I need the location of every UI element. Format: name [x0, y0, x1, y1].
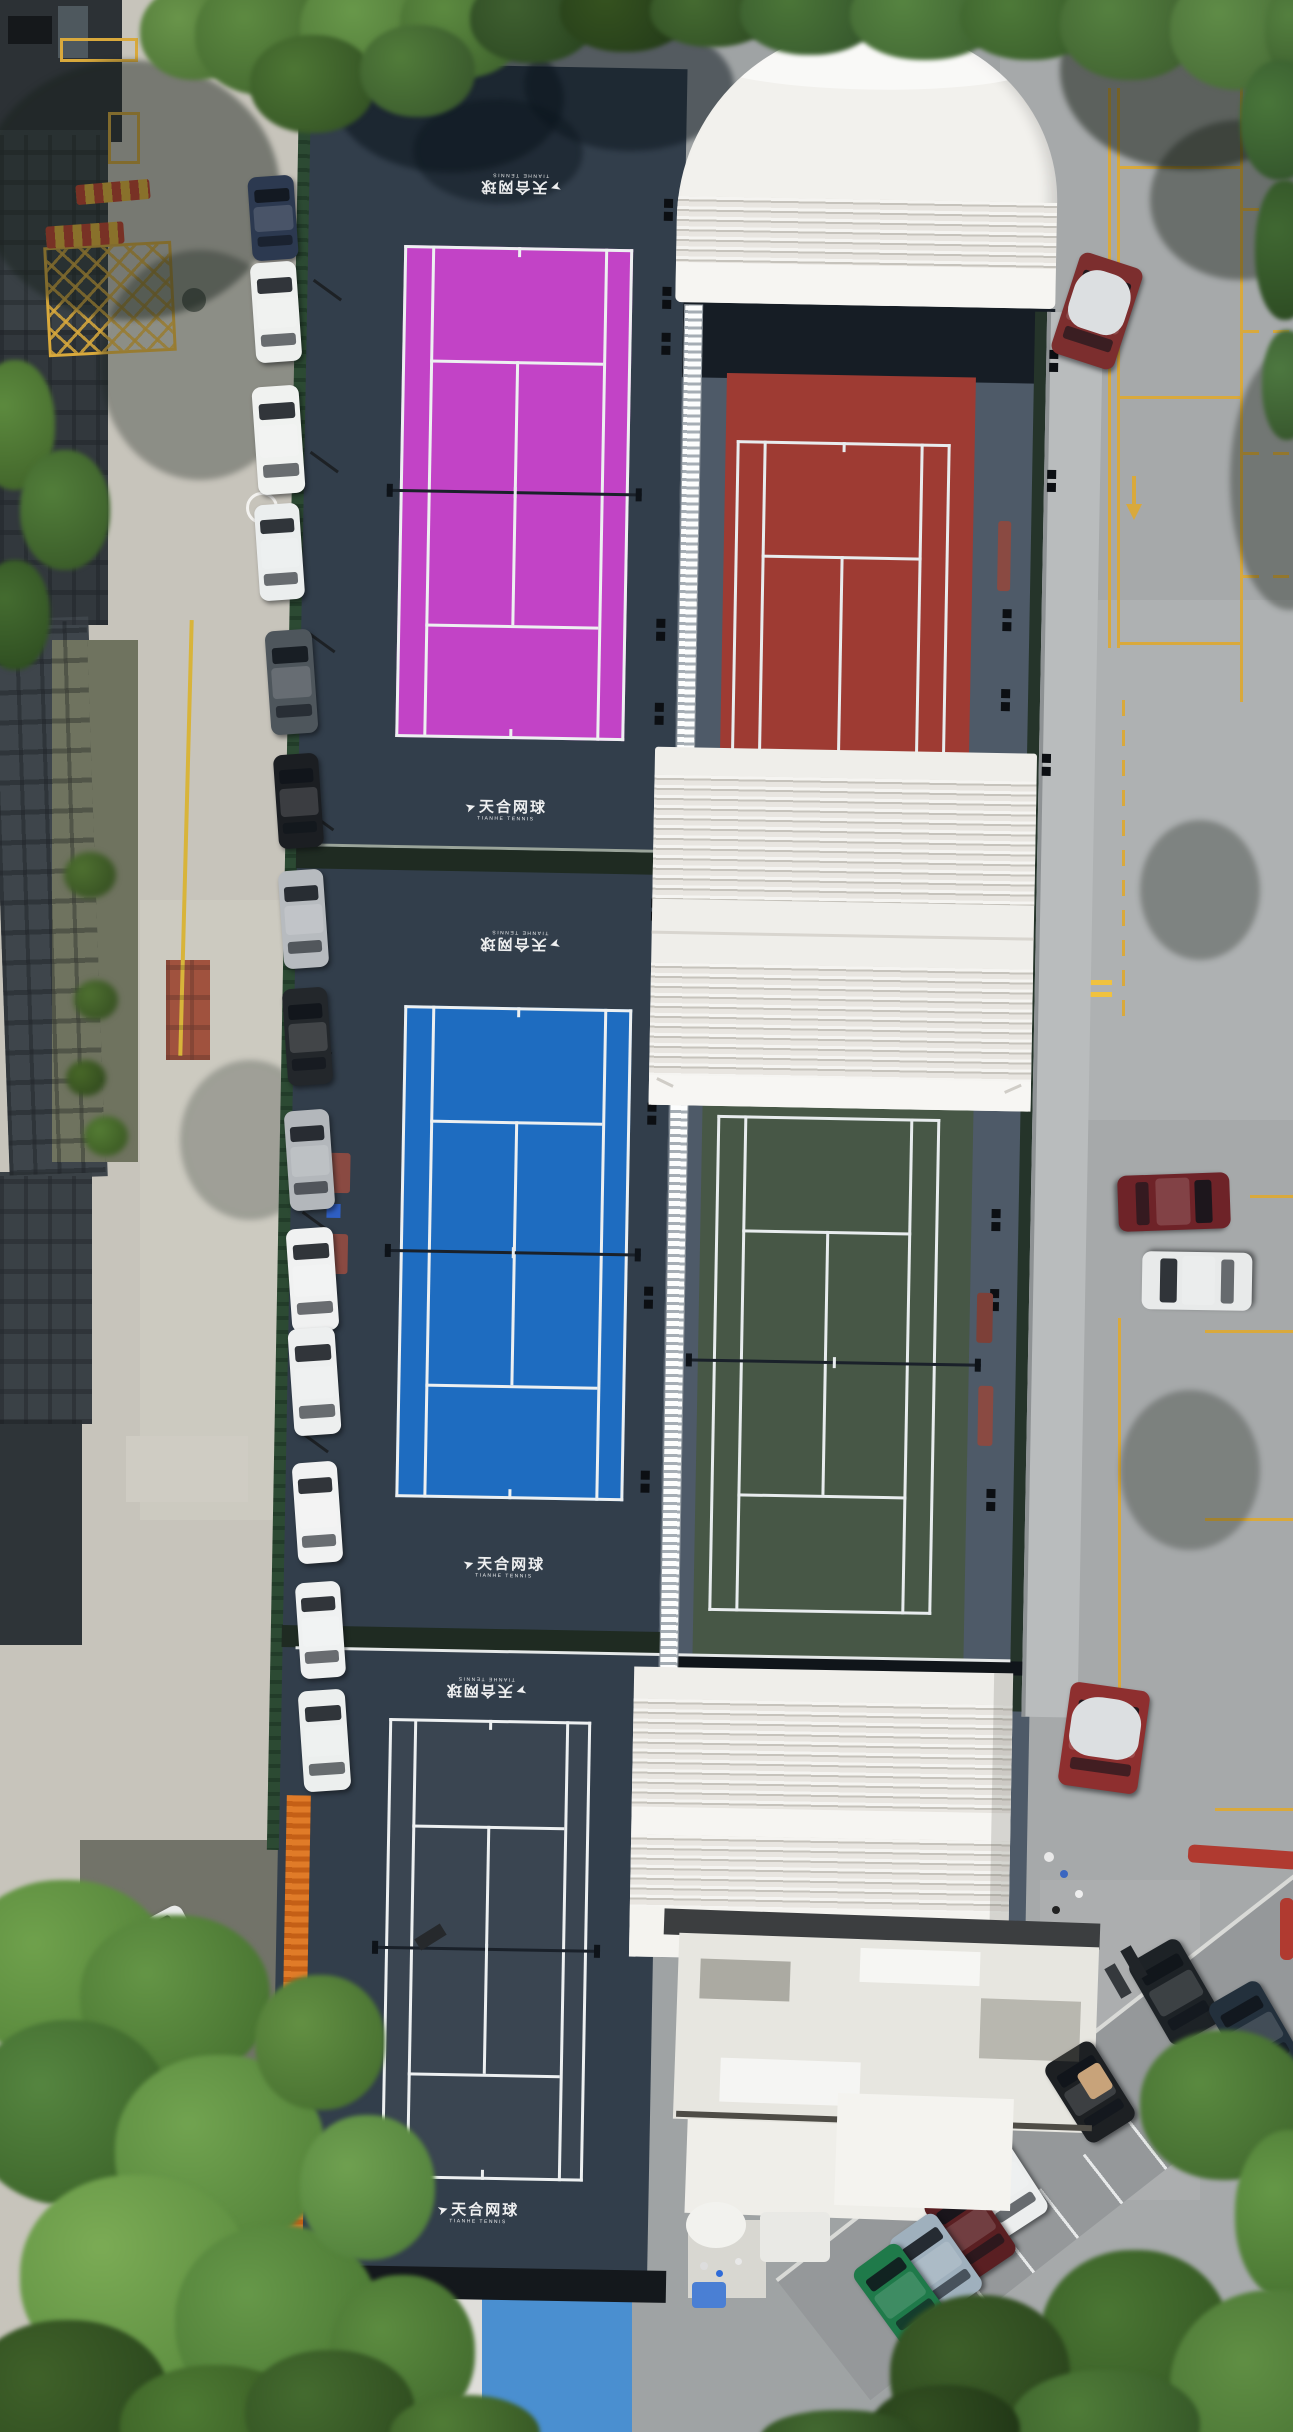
- logo-text-cn: 天合网球: [451, 2202, 519, 2218]
- part: [263, 463, 300, 478]
- ymark-line: [1117, 88, 1120, 648]
- part: [489, 1720, 492, 1730]
- part: [264, 572, 299, 586]
- part: [260, 518, 295, 534]
- part: [640, 1484, 649, 1493]
- logo-text-cn: 天合网球: [477, 1557, 545, 1573]
- person: [716, 2270, 723, 2277]
- bench: [997, 521, 1011, 591]
- part: [992, 1209, 1001, 1218]
- parked-car: [251, 384, 305, 495]
- part: [279, 768, 314, 784]
- bench: [977, 1386, 993, 1446]
- part: [517, 1007, 520, 1017]
- part: [305, 1650, 340, 1664]
- part: [635, 1248, 641, 1261]
- part: [1003, 609, 1012, 618]
- part: [309, 1762, 346, 1776]
- tree-shadow-e: [1140, 820, 1260, 960]
- bush: [66, 1060, 106, 1096]
- part: [1002, 622, 1011, 631]
- building-w5: [0, 1420, 82, 1645]
- part: [254, 188, 290, 203]
- part: [1126, 504, 1142, 520]
- canopy-north: [675, 22, 1060, 309]
- bush: [74, 980, 118, 1020]
- parked-car: [273, 753, 324, 850]
- aerial-photo-tennis-complex: ➤天合网球TIANHE TENNIS➤天合网球TIANHE TENNIS➤天合网…: [0, 0, 1293, 2432]
- part: [655, 703, 664, 712]
- logo-tianhe: ➤天合网球TIANHE TENNIS: [430, 2202, 527, 2234]
- person: [1075, 1890, 1083, 1898]
- person: [735, 2258, 742, 2265]
- parked-car: [295, 1581, 347, 1680]
- part: [294, 1181, 329, 1195]
- barrier-red: [1280, 1898, 1293, 1960]
- part: [257, 277, 293, 294]
- court-red-tick: [843, 442, 846, 452]
- logo-tianhe: ➤天合网球TIANHE TENNIS: [456, 1556, 553, 1588]
- parked-car: [298, 1688, 352, 1792]
- part: [1001, 702, 1010, 711]
- part: [481, 2170, 484, 2180]
- logo-text-en: TIANHE TENNIS: [449, 2219, 507, 2225]
- part: [664, 199, 673, 208]
- tarp-blue: [692, 2282, 726, 2308]
- part: [656, 632, 665, 641]
- part: [290, 1145, 330, 1178]
- brick-walk-joints: [166, 960, 210, 1060]
- roof-ribbed: [834, 2093, 1014, 2211]
- part: [1067, 1694, 1145, 1763]
- part: [662, 287, 671, 296]
- part: [271, 666, 312, 700]
- tree: [250, 35, 375, 133]
- person: [1044, 1852, 1054, 1862]
- part: [644, 1287, 653, 1296]
- part: [1047, 483, 1056, 492]
- person: [1060, 1870, 1068, 1878]
- part: [288, 940, 323, 954]
- part: [636, 488, 642, 501]
- part: [258, 424, 299, 459]
- part: [372, 1941, 378, 1954]
- part: [385, 1244, 391, 1257]
- logo-text-en: TIANHE TENNIS: [491, 929, 549, 935]
- part: [297, 1301, 334, 1315]
- part: [508, 1489, 511, 1499]
- parked-car: [254, 503, 306, 602]
- part: [676, 196, 1057, 269]
- part: [986, 1489, 995, 1498]
- part: [305, 1705, 342, 1722]
- swoosh-bird-icon: ➤: [461, 1556, 475, 1572]
- part: [1132, 476, 1136, 506]
- logo-text-cn: 天合网球: [445, 1682, 513, 1698]
- part: [991, 1222, 1000, 1231]
- bench: [976, 1293, 993, 1343]
- parked-car: [282, 987, 334, 1087]
- part: [1221, 1259, 1235, 1303]
- part: [288, 1022, 328, 1054]
- parked-car: [247, 174, 299, 261]
- parked-car: [250, 261, 303, 364]
- part: [294, 1366, 335, 1401]
- part: [288, 1003, 323, 1020]
- tree-shadow-e: [1120, 1390, 1260, 1550]
- part: [298, 1477, 333, 1494]
- part: [294, 1344, 331, 1362]
- parked-car: [292, 1461, 344, 1565]
- person: [700, 2262, 708, 2270]
- part: [284, 904, 324, 936]
- part: [1042, 754, 1051, 763]
- part: [655, 716, 664, 725]
- roof-stain: [699, 1958, 790, 2001]
- logo-text-en: TIANHE TENNIS: [457, 1675, 515, 1681]
- part: [1047, 470, 1056, 479]
- part: [594, 1945, 600, 1958]
- ymark-line: [1118, 1318, 1121, 1698]
- part: [675, 262, 1056, 309]
- logo-tianhe: ➤天合网球TIANHE TENNIS: [472, 163, 569, 195]
- ymark-line: [1117, 396, 1242, 399]
- swoosh-bird-icon: ➤: [436, 2202, 450, 2218]
- part: [986, 1502, 995, 1511]
- logo-text-en: TIANHE TENNIS: [492, 172, 550, 178]
- part: [1042, 767, 1051, 776]
- parked-car: [264, 628, 318, 735]
- logo-text-cn: 天合网球: [478, 936, 546, 952]
- swoosh-bird-icon: ➤: [463, 799, 477, 815]
- part: [975, 1359, 981, 1372]
- logo-text-cn: 天合网球: [479, 178, 547, 194]
- tree: [360, 25, 475, 117]
- part: [284, 885, 319, 902]
- tree: [20, 450, 110, 570]
- ymark-line: [1250, 1195, 1293, 1198]
- canopy-south-pleats: [632, 1698, 1013, 1813]
- roof-bright: [859, 1948, 980, 1986]
- part: [662, 300, 671, 309]
- part: [1069, 1757, 1131, 1777]
- logo-text-en: TIANHE TENNIS: [475, 1574, 533, 1580]
- ymark-line: [1205, 1330, 1293, 1333]
- part: [512, 1247, 515, 1258]
- part: [258, 402, 295, 420]
- part: [485, 1944, 488, 1955]
- part: [387, 484, 393, 497]
- part: [292, 1057, 327, 1071]
- utility-slab: [126, 1436, 248, 1502]
- building-w4-windows: [0, 1176, 92, 1424]
- bush: [64, 852, 116, 898]
- part: [1155, 1177, 1191, 1225]
- part: [276, 704, 313, 718]
- part: [664, 212, 673, 221]
- part: [661, 346, 670, 355]
- canopy-mid-pleats: [652, 775, 1036, 906]
- part: [257, 235, 293, 247]
- part: [304, 1725, 345, 1758]
- logo-tianhe: ➤天合网球TIANHE TENNIS: [471, 920, 568, 952]
- tree: [255, 1975, 385, 2110]
- part: [301, 1616, 341, 1648]
- part: [662, 333, 671, 342]
- part: [293, 1243, 330, 1260]
- swoosh-bird-icon: ➤: [514, 1683, 528, 1699]
- bush: [84, 1116, 128, 1156]
- car-white-mid: [1142, 1251, 1253, 1311]
- canopy-south-pleats: [630, 1834, 1010, 1913]
- ymark-arrow: [1126, 476, 1142, 520]
- umbrella-white: [686, 2202, 746, 2248]
- ymark-line: [1117, 642, 1242, 645]
- part: [260, 538, 300, 570]
- parked-car: [284, 1109, 336, 1212]
- person: [1052, 1906, 1060, 1914]
- car-covered-red: [1057, 1681, 1151, 1795]
- parked-car: [287, 1326, 341, 1436]
- part: [641, 1471, 650, 1480]
- ymark-line: [1215, 1808, 1293, 1811]
- part: [1001, 689, 1010, 698]
- rooftop-unit: [8, 16, 52, 44]
- part: [518, 247, 521, 257]
- roof-stain: [979, 1998, 1081, 2061]
- part: [647, 1116, 656, 1125]
- part: [686, 1353, 692, 1366]
- car-red-mid: [1117, 1172, 1231, 1232]
- part: [514, 487, 517, 498]
- ymark-dash: [1122, 700, 1125, 1020]
- part: [833, 1357, 836, 1368]
- logo-text-cn: 天合网球: [479, 800, 547, 816]
- part: [1182, 1256, 1216, 1306]
- logo-tianhe: ➤天合网球TIANHE TENNIS: [458, 799, 555, 831]
- part: [279, 787, 319, 818]
- part: [1135, 1182, 1149, 1225]
- part: [1194, 1180, 1212, 1224]
- part: [1160, 1258, 1178, 1302]
- part: [302, 1534, 337, 1548]
- yellow-stop-bar: [60, 38, 138, 62]
- canopy-mid-pleats: [649, 963, 1033, 1082]
- swoosh-bird-icon: ➤: [548, 937, 562, 953]
- part: [1049, 363, 1058, 372]
- part: [656, 619, 665, 628]
- logo-tianhe: ➤天合网球TIANHE TENNIS: [438, 1667, 535, 1699]
- swoosh-bird-icon: ➤: [549, 179, 563, 195]
- part: [292, 1264, 333, 1298]
- parked-car: [278, 869, 330, 970]
- part: [301, 1596, 336, 1612]
- tree: [300, 2115, 435, 2260]
- tent-white: [760, 2212, 830, 2262]
- part: [644, 1300, 653, 1309]
- part: [290, 1125, 325, 1142]
- part: [253, 205, 294, 233]
- part: [261, 333, 297, 347]
- part: [256, 297, 297, 330]
- part: [298, 1497, 338, 1530]
- part: [509, 729, 512, 739]
- canopy-shadow-band: [682, 302, 1055, 384]
- part: [272, 646, 309, 664]
- part: [283, 821, 318, 834]
- logo-text-en: TIANHE TENNIS: [477, 816, 535, 822]
- parked-car: [285, 1226, 339, 1332]
- part: [299, 1404, 336, 1419]
